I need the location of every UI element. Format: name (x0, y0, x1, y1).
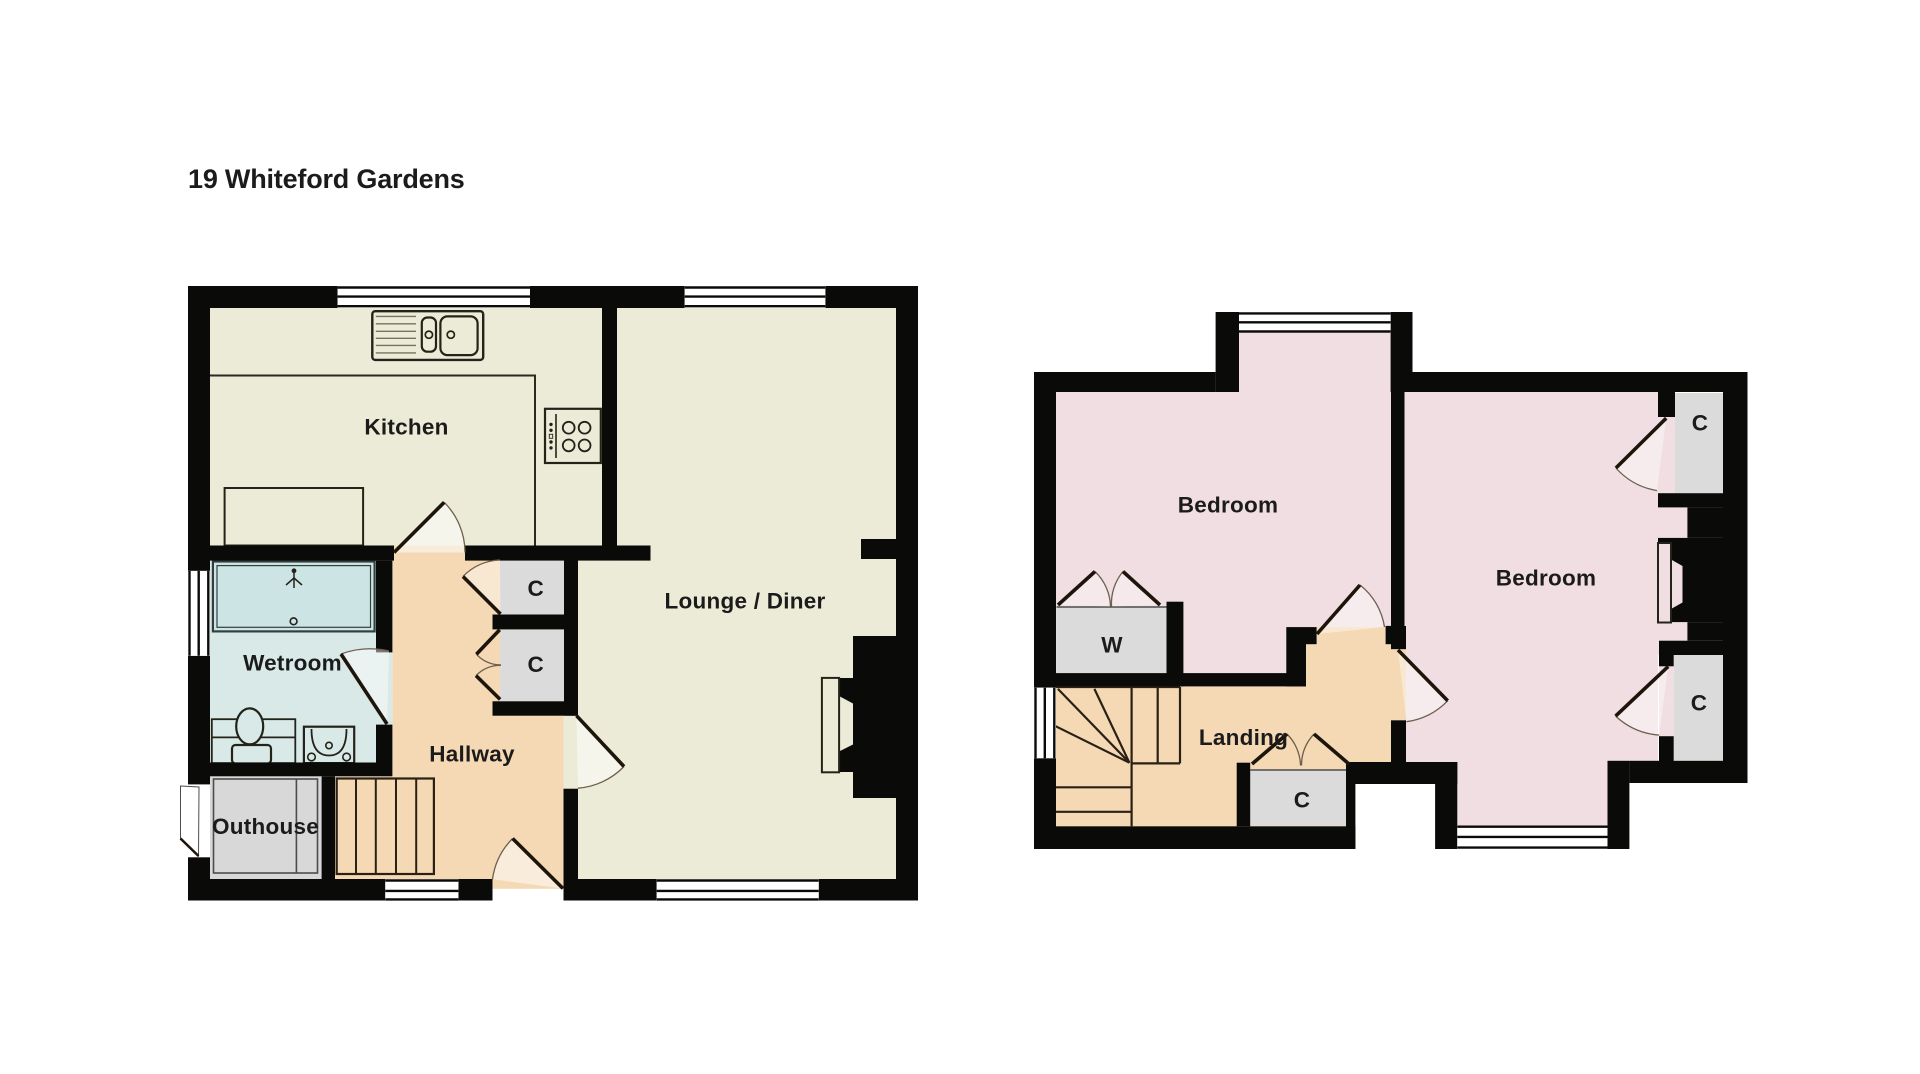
svg-text:19 Whiteford Gardens: 19 Whiteford Gardens (188, 164, 465, 194)
svg-text:Lounge / Diner: Lounge / Diner (665, 589, 826, 614)
svg-text:C: C (528, 652, 545, 677)
svg-text:C: C (1294, 788, 1311, 813)
svg-text:Bedroom: Bedroom (1496, 566, 1597, 591)
svg-text:Wetroom: Wetroom (243, 651, 342, 676)
svg-text:Landing: Landing (1199, 725, 1288, 750)
svg-text:Hallway: Hallway (429, 741, 515, 766)
svg-text:C: C (528, 576, 545, 601)
svg-text:W: W (1101, 632, 1123, 657)
svg-text:Kitchen: Kitchen (364, 415, 448, 440)
svg-text:C: C (1692, 411, 1709, 436)
svg-text:C: C (1691, 691, 1708, 716)
svg-text:Outhouse: Outhouse (212, 814, 319, 839)
svg-text:Bedroom: Bedroom (1178, 493, 1279, 518)
